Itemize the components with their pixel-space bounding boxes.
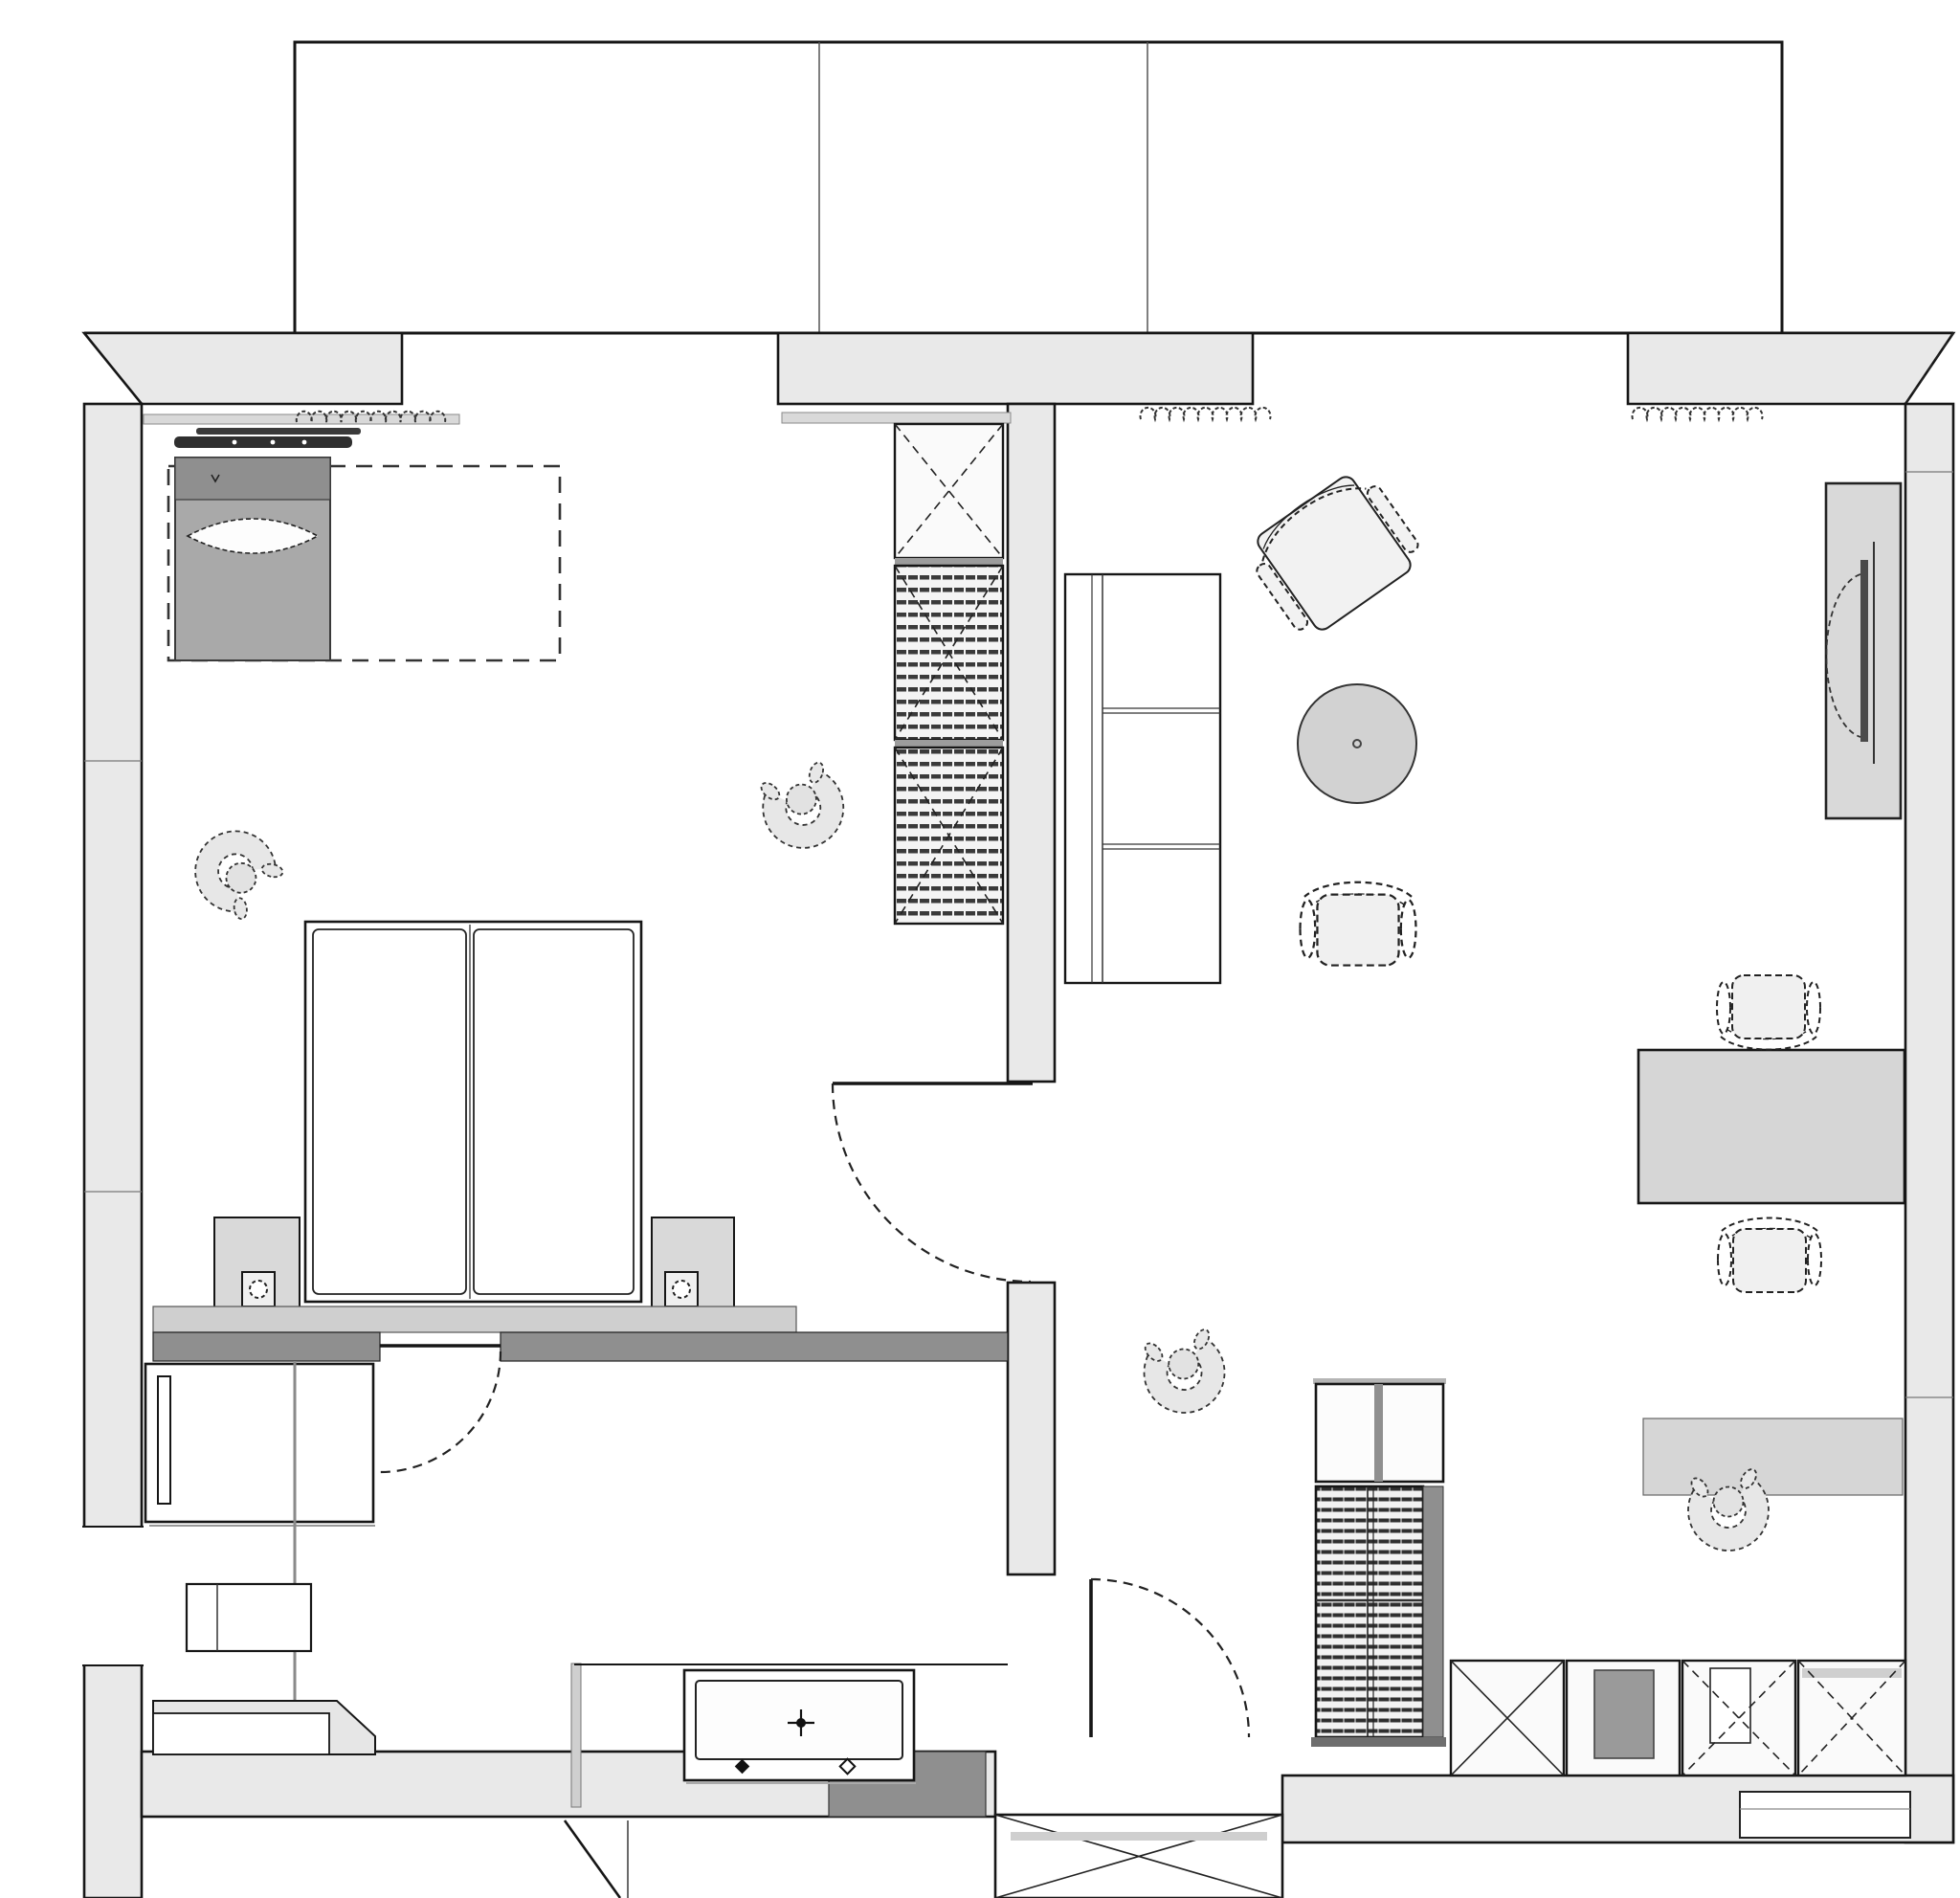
headboard-wall-left bbox=[153, 1332, 380, 1361]
window-sill bbox=[144, 414, 459, 424]
tall-fridge-unit bbox=[1311, 1378, 1446, 1747]
lamp-icon bbox=[673, 1281, 690, 1298]
fridge-upper-divider bbox=[1374, 1384, 1383, 1482]
bathtub bbox=[684, 1670, 916, 1783]
left-wall-opening bbox=[82, 1527, 144, 1665]
person-bedroom-center bbox=[755, 756, 851, 855]
shelf-dot bbox=[271, 440, 276, 445]
tub-niche-bar bbox=[571, 1664, 581, 1807]
top-wall-segment-c bbox=[1628, 333, 1953, 404]
sofa-body bbox=[1065, 574, 1220, 983]
fridge-louver-front bbox=[1316, 1486, 1423, 1737]
shelf-dot bbox=[302, 440, 307, 445]
armchair-rotated bbox=[1239, 462, 1428, 643]
wardrobe-divider bbox=[895, 740, 1003, 748]
mattress-right bbox=[474, 929, 634, 1294]
person-bedroom-left bbox=[179, 815, 295, 930]
curtain-pelmet bbox=[782, 413, 1011, 423]
room-bedroom bbox=[153, 424, 1008, 1361]
partition-wall-upper bbox=[1008, 404, 1055, 1082]
bedroom-door-arc bbox=[833, 1083, 1031, 1282]
top-wall-segment-a bbox=[84, 333, 402, 404]
kitchen-base-cabinets bbox=[1451, 1661, 1905, 1775]
shaft-bar bbox=[1011, 1832, 1267, 1841]
headboard-wall-right bbox=[501, 1332, 1008, 1361]
appliance-front bbox=[1594, 1670, 1654, 1758]
wardrobe-divider bbox=[895, 558, 1003, 566]
radiator-shelf-body bbox=[174, 436, 352, 448]
right-wall bbox=[1905, 404, 1953, 1842]
floor-plan-page bbox=[0, 0, 1960, 1898]
armchair-seat bbox=[1254, 473, 1414, 633]
dining-table bbox=[1638, 1050, 1904, 1203]
vanity-cabinet bbox=[145, 1364, 373, 1522]
wall-window-insert bbox=[1740, 1792, 1910, 1838]
room-bathroom bbox=[145, 1361, 1008, 1807]
tv-screen bbox=[1860, 560, 1868, 742]
cabinet-insert bbox=[1710, 1668, 1750, 1743]
bench-inner bbox=[153, 1713, 329, 1754]
bathroom-door-arc bbox=[380, 1351, 501, 1472]
tv-sideboard bbox=[1826, 483, 1901, 818]
curtain-squiggle-living-left bbox=[1140, 408, 1270, 419]
exterior-door-leaf bbox=[565, 1820, 620, 1898]
shelf-dot bbox=[233, 440, 237, 445]
left-wall bbox=[84, 404, 142, 1898]
sofa-3-seat bbox=[1065, 574, 1220, 983]
dining-chair-bottom bbox=[1718, 1218, 1821, 1293]
double-bed bbox=[305, 922, 641, 1302]
partition-wall-lower bbox=[1008, 1283, 1055, 1574]
kitchen-door-arc bbox=[1091, 1579, 1249, 1737]
room-living bbox=[1065, 462, 1904, 1203]
wardrobe-column bbox=[895, 424, 1003, 924]
upper-building-outline bbox=[295, 42, 1782, 332]
wall-counter-desk bbox=[1643, 1418, 1903, 1495]
floor-plan-canvas bbox=[0, 0, 1960, 1898]
person-kitchen-left bbox=[1141, 1326, 1228, 1417]
lamp-icon bbox=[250, 1281, 267, 1298]
dresser-top-band bbox=[175, 458, 330, 500]
headboard-ledge bbox=[153, 1306, 796, 1332]
curtain-squiggle-living-right bbox=[1633, 408, 1763, 419]
room-kitchen bbox=[1311, 1378, 1910, 1838]
cabinet-door-bar bbox=[158, 1376, 170, 1504]
radiator-shelf-bar bbox=[196, 428, 361, 435]
mattress-left bbox=[313, 929, 466, 1294]
round-coffee-table bbox=[1298, 684, 1416, 803]
dining-chair-top bbox=[1717, 975, 1820, 1050]
cabinet-top-bar bbox=[1802, 1668, 1902, 1678]
radiator bbox=[187, 1584, 311, 1651]
fridge-side-panel bbox=[1423, 1486, 1443, 1737]
top-wall-segment-b bbox=[778, 333, 1253, 404]
fridge-base-bar bbox=[1311, 1737, 1446, 1747]
armchair-lower-seat bbox=[1301, 882, 1416, 966]
